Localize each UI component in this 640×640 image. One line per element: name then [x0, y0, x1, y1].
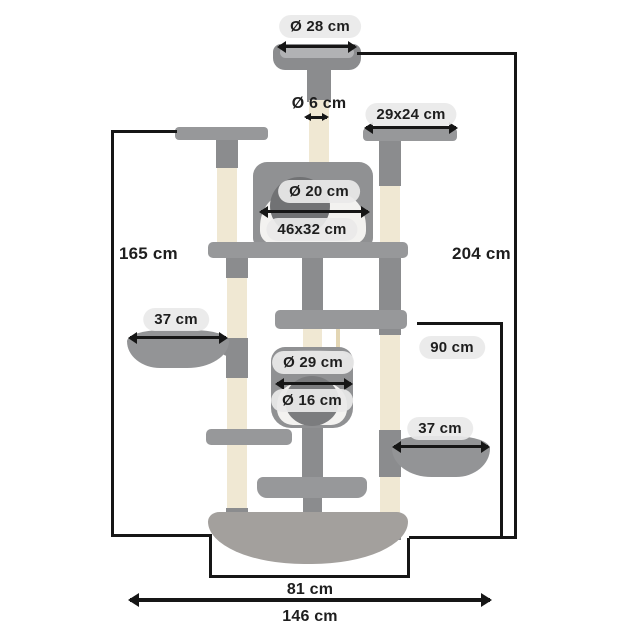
dimension-label-base-width: 81 cm [287, 581, 333, 599]
lower-left-platform [206, 429, 292, 445]
left-top-platform [175, 127, 268, 140]
center-pole-gray-1 [302, 258, 323, 310]
right-top-platform [363, 128, 457, 141]
dimension-line-81-left-vertical [209, 536, 212, 578]
left-pole-sisal-2 [227, 278, 247, 338]
dimension-badge-left-hammock-width: 37 cm [143, 308, 209, 331]
dimension-line-165-vertical [111, 130, 114, 537]
corner-base [208, 512, 408, 564]
dimension-badge-condo-size: 46x32 cm [266, 218, 357, 241]
dimension-line-204-vertical [514, 52, 517, 539]
left-pole-sisal-1 [217, 168, 237, 242]
right-pole-gray-1 [379, 141, 401, 186]
main-platform [208, 242, 408, 258]
center-pole-gray-2 [302, 427, 323, 477]
mid-platform [275, 310, 407, 329]
double-arrow-left-hammock [130, 336, 226, 339]
dimension-badge-barrel-diameter: Ø 29 cm [272, 351, 354, 374]
double-arrow-barrel [277, 382, 351, 385]
top-bed-cushion [280, 47, 354, 58]
lower-center-platform [257, 477, 367, 498]
double-arrow-right-hammock [394, 445, 488, 448]
left-pole-gray-1 [216, 140, 238, 168]
dimension-line-165-bottom-arm [111, 534, 212, 537]
double-arrow-top-platform [366, 126, 456, 129]
dimension-badge-top-bed-diameter: Ø 28 cm [279, 15, 361, 38]
left-pole-sisal-3 [227, 378, 247, 429]
dimension-line-81-bottom [209, 575, 410, 578]
double-arrow-pole-diameter [306, 116, 327, 119]
dimension-line-90-vertical [500, 322, 503, 538]
dimension-line-90-bottom-arm [409, 536, 517, 539]
double-arrow-condo [261, 210, 368, 213]
dimension-badge-height-right-lower: 90 cm [419, 336, 485, 359]
dimension-badge-top-platform-size: 29x24 cm [365, 103, 456, 126]
dimension-label-pole-diameter: Ø 6 cm [292, 95, 347, 113]
right-pole-sisal-1 [380, 186, 400, 248]
right-hammock [392, 436, 490, 477]
dimension-line-90-top-arm [417, 322, 503, 325]
left-pole-sisal-4 [227, 445, 247, 508]
dimension-line-81-right-vertical [407, 538, 410, 578]
dimension-line-204-top-arm [357, 52, 517, 55]
dimension-label-height-total: 204 cm [452, 244, 511, 264]
dimension-badge-condo-hole-diameter: Ø 20 cm [278, 180, 360, 203]
dimension-label-height-left: 165 cm [119, 244, 178, 264]
dimension-line-165-top-arm [111, 130, 177, 133]
dimension-badge-right-hammock-width: 37 cm [407, 417, 473, 440]
double-arrow-top-bed [279, 45, 355, 48]
cat-tree-dimension-diagram: Ø 28 cm Ø 6 cm 29x24 cm Ø 20 cm 46x32 cm… [0, 0, 640, 640]
dimension-label-total-width: 146 cm [282, 608, 337, 626]
center-pole-sisal-1 [303, 329, 322, 348]
dimension-badge-barrel-hole-diameter: Ø 16 cm [271, 389, 353, 412]
right-pole-sisal-2 [380, 335, 400, 430]
left-pole-gray-2 [226, 258, 248, 278]
